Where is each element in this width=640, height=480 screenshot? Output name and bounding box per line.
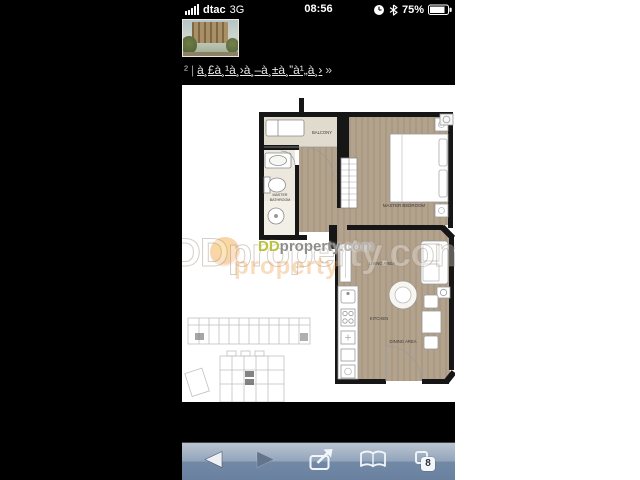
back-button[interactable] (202, 449, 224, 474)
dining-chair (424, 336, 438, 349)
link-suffix: » (322, 63, 332, 77)
unit-floor-plan: BALCONY MASTER BATHROOM MASTER BEDROOM L… (251, 98, 455, 394)
bookmarks-button[interactable] (359, 449, 387, 474)
hallway-floor (299, 147, 337, 232)
sofa (421, 241, 448, 284)
pillow (439, 170, 447, 197)
room-label-master-bathroom-2: BATHROOM (270, 198, 291, 202)
air-conditioner (440, 114, 453, 125)
forward-button[interactable] (255, 449, 277, 474)
room-label-kitchen: KITCHEN (370, 316, 388, 321)
pillow (439, 139, 447, 166)
status-bar: dtac 3G 08:56 75% (182, 0, 455, 19)
floor-plan-image: BALCONY MASTER BATHROOM MASTER BEDROOM L… (182, 85, 455, 402)
nightstand (435, 204, 448, 217)
link-separator: | (188, 63, 197, 77)
browser-toolbar: 8 (182, 442, 455, 480)
bathroom-sink (270, 156, 287, 166)
pages-button[interactable]: 8 (414, 451, 438, 473)
room-label-balcony: BALCONY (312, 130, 332, 135)
kitchen-counter (338, 286, 358, 379)
cabinet (341, 349, 355, 361)
room-label-living-area: LIVING AREA (369, 261, 395, 266)
wardrobe (341, 158, 357, 208)
share-icon (308, 448, 335, 471)
dining-chair (424, 295, 438, 308)
thumbnail-building (192, 22, 228, 43)
balcony-bench (266, 120, 304, 136)
battery-icon (428, 4, 452, 16)
bookmarks-icon (359, 449, 387, 469)
dining-table (422, 311, 441, 333)
back-arrow-icon (202, 449, 224, 469)
letterbox-left (0, 0, 182, 480)
watermark-flame (210, 237, 240, 267)
room-label-master-bedroom: MASTER BEDROOM (383, 203, 426, 208)
breadcrumb: ²|à¸£à¸¹à¸›à¸–à¸±à¸”à¹„à¸›» (184, 63, 332, 77)
stove (341, 309, 355, 326)
forward-arrow-icon (255, 449, 277, 469)
share-button[interactable] (308, 448, 335, 476)
refrigerator (341, 365, 355, 378)
toilet-bowl (269, 178, 286, 192)
tab-count-badge: 8 (421, 457, 435, 471)
bluetooth-icon (389, 4, 398, 16)
side-table (437, 287, 450, 298)
thumbnail-ground (183, 52, 238, 56)
room-label-master-bathroom-1: MASTER (273, 193, 288, 197)
property-photo-thumbnail[interactable] (182, 19, 239, 57)
room-label-dining-area: DINING AREA (390, 339, 417, 344)
alarm-clock-icon (373, 4, 385, 16)
screenshot-canvas: dtac 3G 08:56 75% (0, 0, 640, 480)
phone-screen: dtac 3G 08:56 75% (182, 0, 455, 480)
page-header-area: ²|à¸£à¸¹à¸›à¸–à¸±à¸”à¹„à¸›» (182, 19, 455, 85)
next-image-link[interactable]: à¸£à¸¹à¸›à¸–à¸±à¸”à¹„à¸› (197, 63, 322, 77)
page-background-strip (182, 402, 455, 442)
battery-percent-label: 75% (402, 4, 424, 16)
